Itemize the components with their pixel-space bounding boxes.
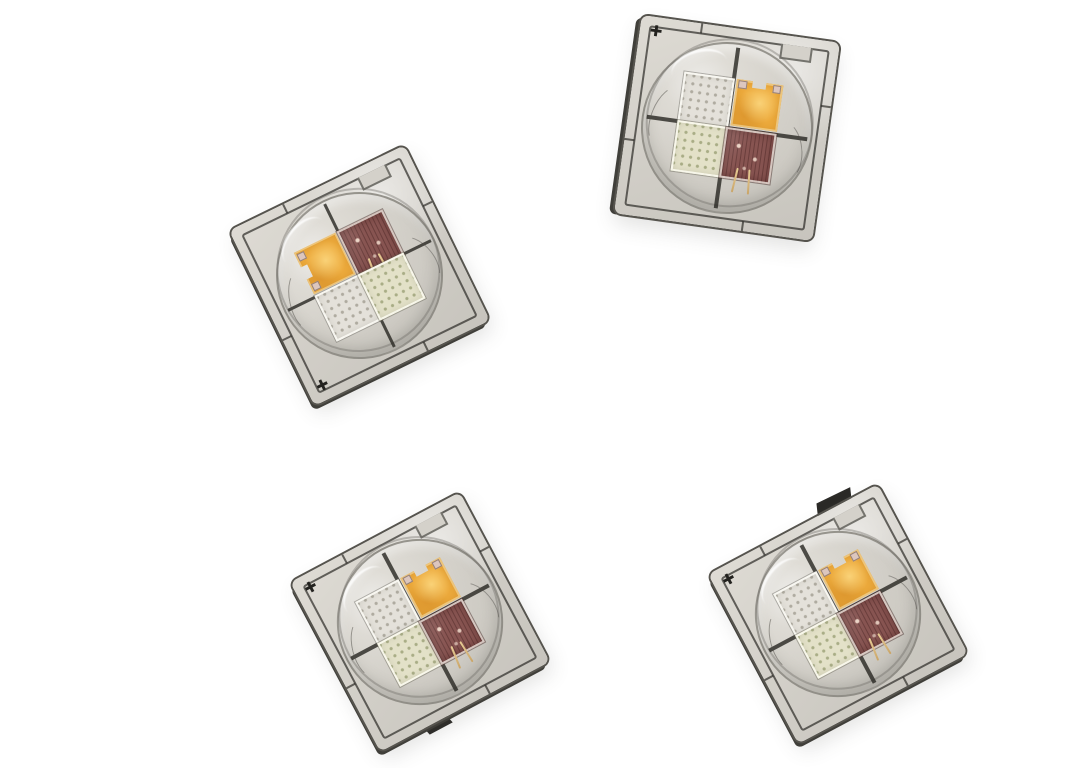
trace-tick xyxy=(341,554,347,563)
die-top-right xyxy=(730,79,784,133)
trace-tick xyxy=(902,677,908,686)
trace-tick xyxy=(282,204,288,214)
ceramic-substrate: ✚ xyxy=(614,15,840,241)
dome-lens xyxy=(308,510,531,733)
trace-tick xyxy=(624,138,634,141)
led-chip-4: ✚ xyxy=(708,484,968,744)
ceramic-substrate: ✚ xyxy=(229,145,490,406)
die-grid xyxy=(670,71,784,185)
ceramic-substrate: ✚ xyxy=(708,484,968,744)
trace-tick xyxy=(282,335,292,341)
trace-tick xyxy=(759,546,765,555)
ceramic-substrate: ✚ xyxy=(290,492,550,752)
trace-tick xyxy=(898,538,907,544)
trace-tick xyxy=(764,675,773,681)
led-chip-1: ✚ xyxy=(614,15,840,241)
photo-background: ✚ xyxy=(0,0,1074,768)
trace-tick xyxy=(484,685,490,694)
trace-tick xyxy=(423,201,433,207)
trace-tick xyxy=(741,221,744,231)
led-chip-2: ✚ xyxy=(229,145,490,406)
trace-tick xyxy=(480,546,489,552)
trace-tick xyxy=(821,105,831,108)
dome-lens xyxy=(247,163,471,387)
fiducial-cross-icon: ✚ xyxy=(649,23,664,40)
led-chip-3: ✚ xyxy=(290,492,550,752)
die-bottom-right xyxy=(719,127,777,185)
dome-lens xyxy=(726,502,949,725)
trace-tick xyxy=(346,683,355,689)
trace-tick xyxy=(423,342,429,352)
